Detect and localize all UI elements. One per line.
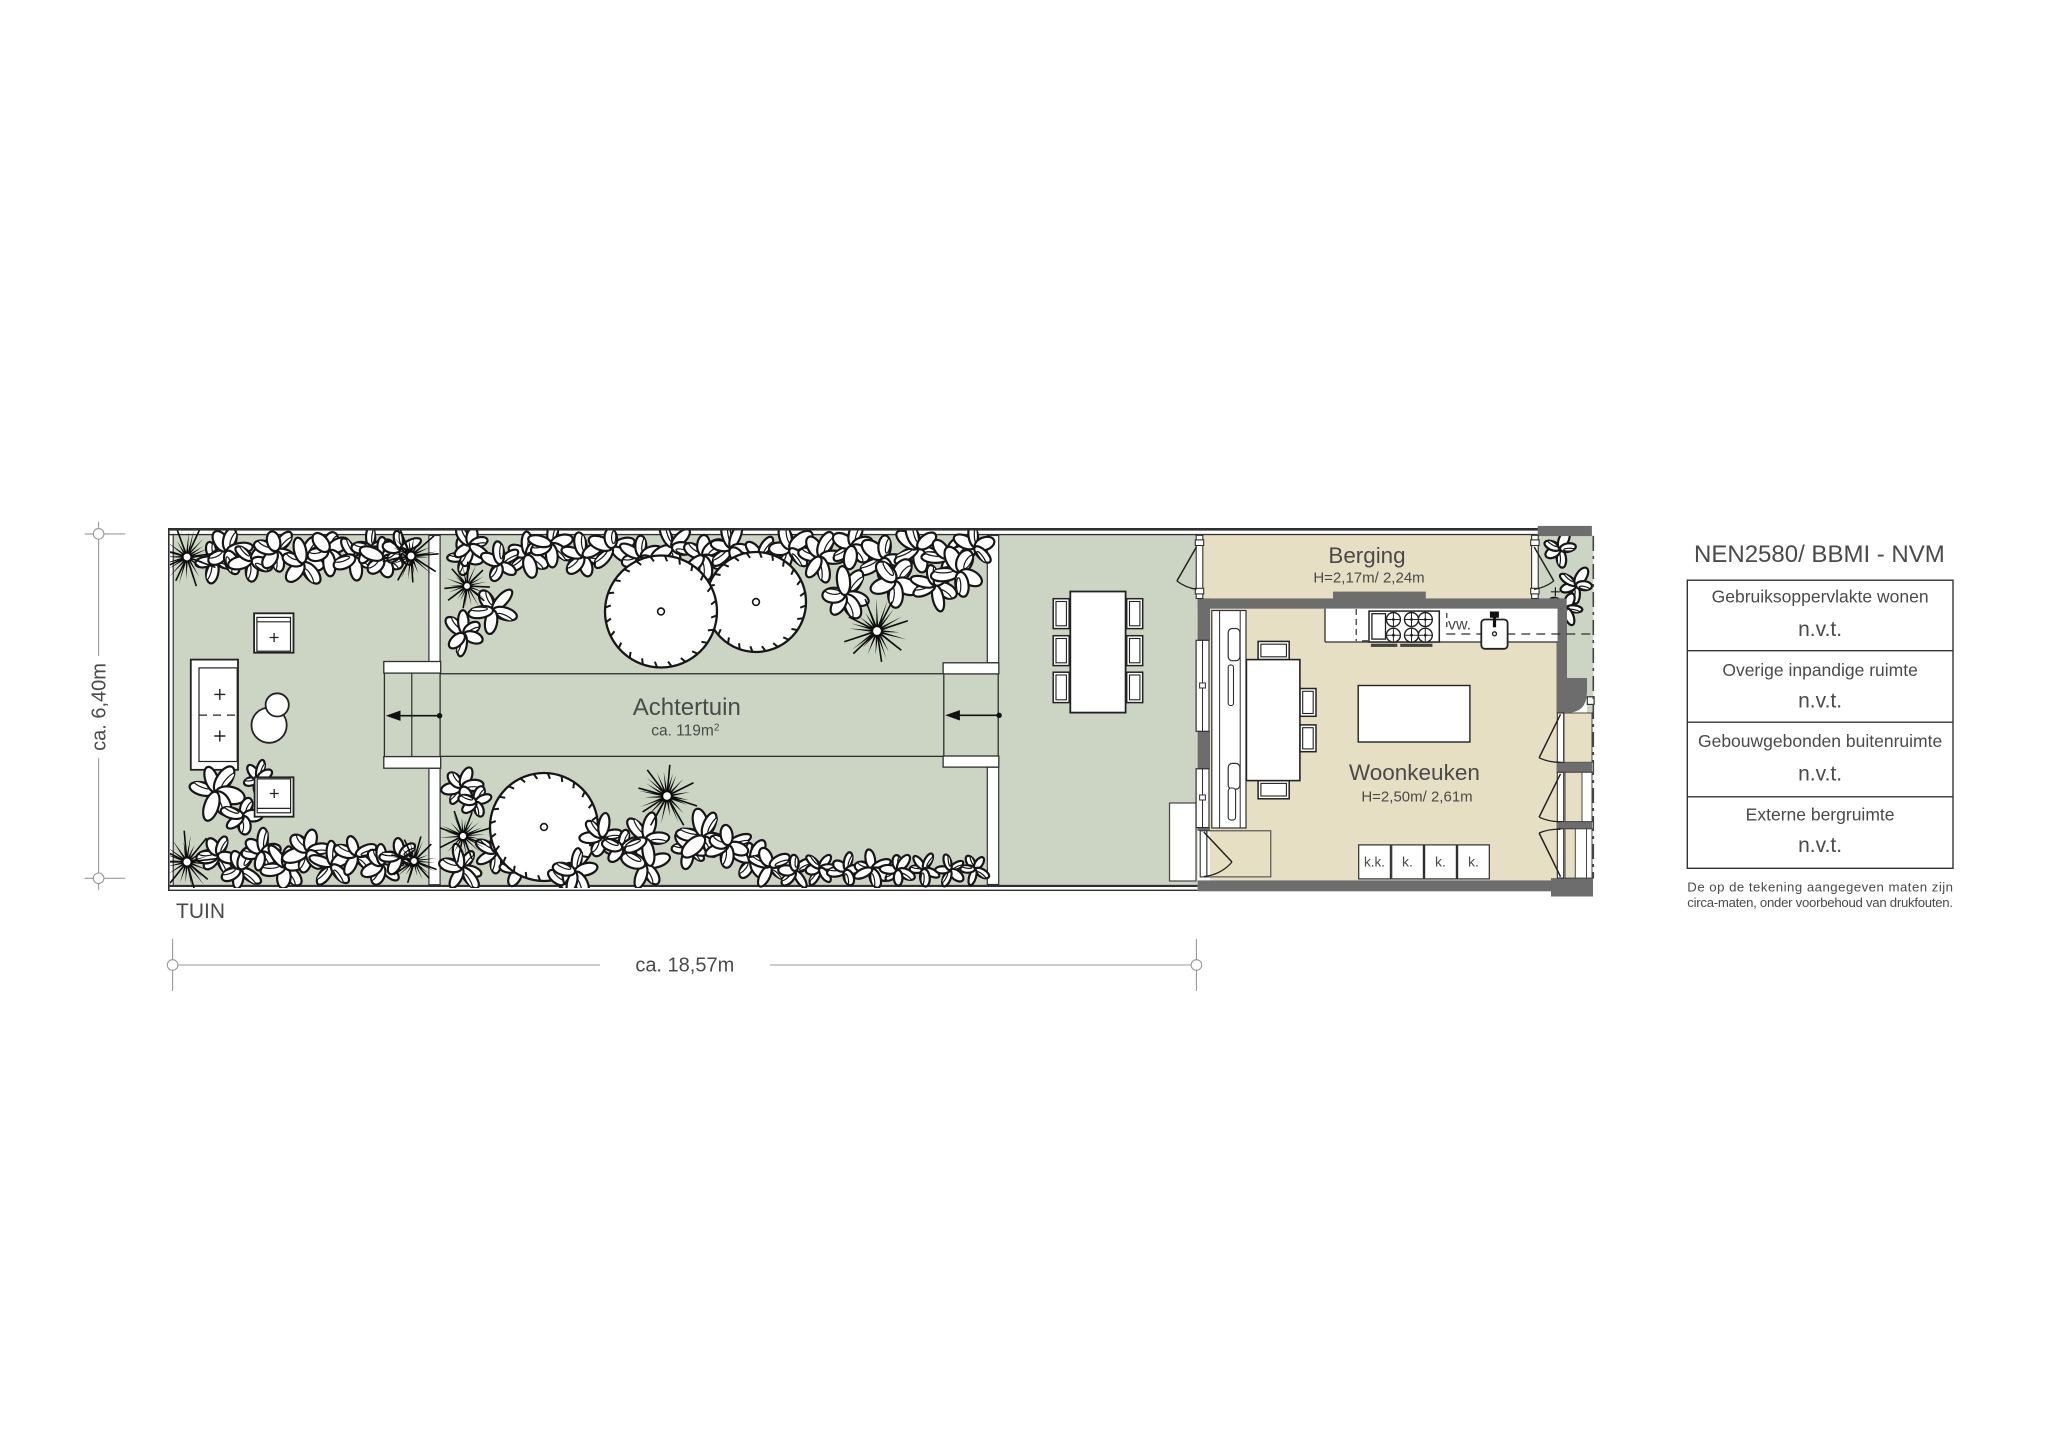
svg-text:Overige inpandige ruimte: Overige inpandige ruimte [1722, 660, 1918, 680]
svg-text:n.v.t.: n.v.t. [1798, 618, 1842, 641]
svg-text:k.: k. [1402, 854, 1413, 870]
svg-text:k.k.: k.k. [1364, 855, 1385, 870]
svg-text:NEN2580/ BBMI - NVM: NEN2580/ BBMI - NVM [1694, 541, 1945, 568]
svg-text:n.v.t.: n.v.t. [1798, 834, 1842, 857]
svg-text:k.: k. [1435, 854, 1446, 870]
svg-text:Gebouwgebonden buitenruimte: Gebouwgebonden buitenruimte [1698, 731, 1942, 751]
svg-text:ca. 119m2: ca. 119m2 [651, 723, 720, 740]
svg-text:Berging: Berging [1328, 543, 1405, 568]
svg-text:vw.: vw. [1448, 617, 1471, 634]
svg-text:TUIN: TUIN [176, 900, 225, 923]
svg-text:n.v.t.: n.v.t. [1798, 689, 1842, 712]
svg-text:Woonkeuken: Woonkeuken [1349, 760, 1480, 785]
svg-text:H=2,50m/ 2,61m: H=2,50m/ 2,61m [1361, 789, 1472, 806]
svg-text:Achtertuin: Achtertuin [633, 694, 741, 721]
svg-text:ca. 6,40m: ca. 6,40m [89, 663, 111, 751]
svg-text:ca. 18,57m: ca. 18,57m [635, 955, 734, 977]
svg-text:Externe bergruimte: Externe bergruimte [1746, 804, 1895, 824]
svg-text:circa-maten, onder voorbehoud: circa-maten, onder voorbehoud van drukfo… [1687, 895, 1953, 910]
svg-text:n.v.t.: n.v.t. [1798, 763, 1842, 786]
svg-text:Gebruiksoppervlakte wonen: Gebruiksoppervlakte wonen [1712, 587, 1929, 607]
svg-text:H=2,17m/ 2,24m: H=2,17m/ 2,24m [1313, 570, 1424, 587]
svg-text:De op de tekening aangegeven m: De op de tekening aangegeven maten zijn [1687, 880, 1953, 895]
svg-text:k.: k. [1468, 854, 1479, 870]
